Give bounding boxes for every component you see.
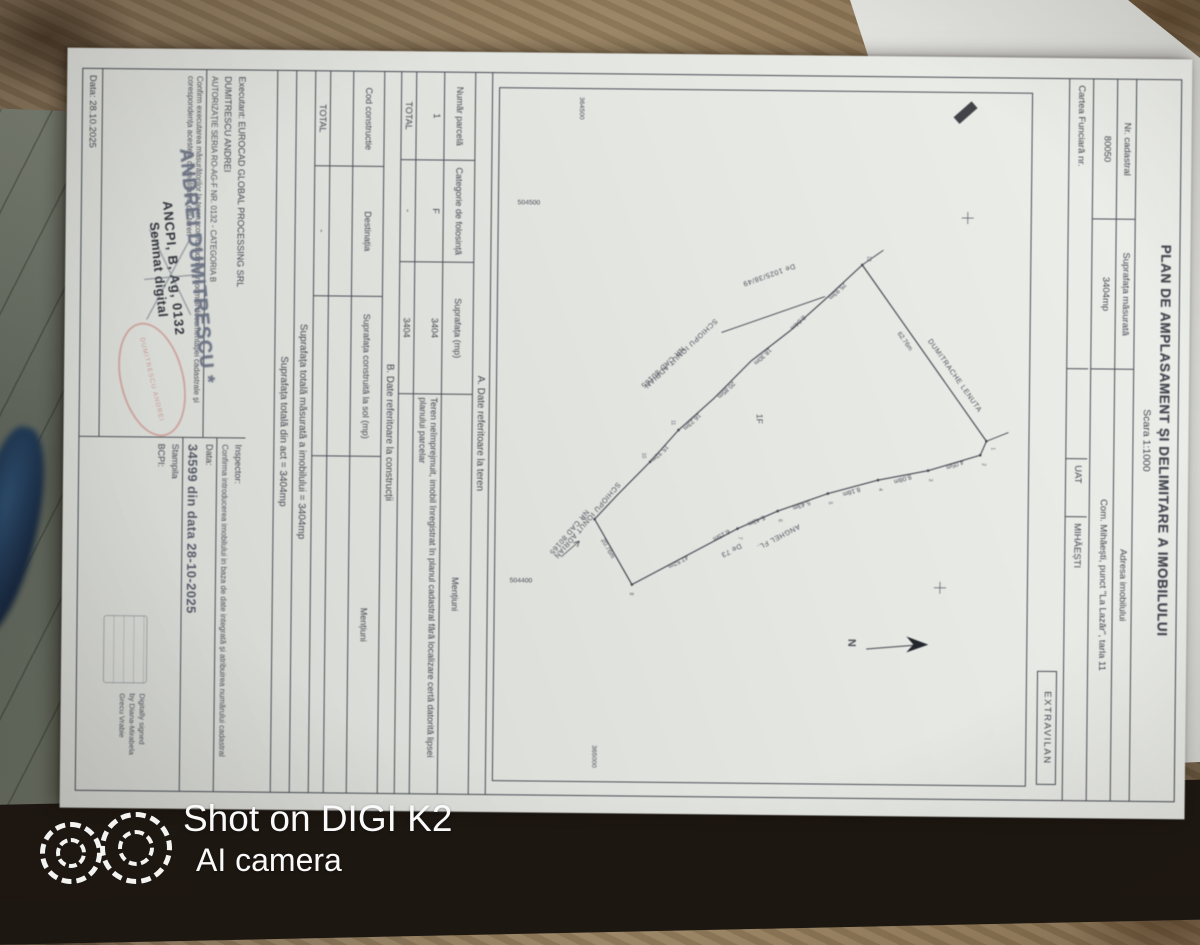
total-dash: - <box>400 160 416 262</box>
parcel-boundary <box>594 262 988 588</box>
vertex-number: 8 <box>628 593 634 596</box>
header-table: Nr. cadastral 80050 Suprafața măsurată 3… <box>1086 79 1138 800</box>
digsig-line1: Digitally signed <box>136 693 147 755</box>
zone-extravilan-label: EXTRAVILAN <box>1036 671 1057 785</box>
empty-cell <box>323 456 350 792</box>
inspector-box: Inspector: Confirma introducerea imobilu… <box>76 437 246 792</box>
empty-cell <box>328 166 352 296</box>
total-value: 3404 <box>398 262 414 394</box>
executant-date: Data: 28.10.2025 <box>79 69 103 436</box>
col-suprafata-construita: Suprafața construită la sol (mp) <box>350 297 383 457</box>
total-label-b: TOTAL <box>315 71 331 166</box>
grid-coordinate: 504400 <box>510 577 533 584</box>
total-empty-b <box>312 296 329 456</box>
suprafata-label: Suprafața măsurată <box>1114 220 1135 369</box>
neighbor-cad-left: NR CAD 80165 <box>639 345 686 391</box>
edge-print-mark <box>954 101 978 124</box>
grid-coordinate: 365000 <box>590 745 597 768</box>
dim-label: 20.85m <box>716 380 737 400</box>
boundary-spur-top <box>986 432 1008 441</box>
dim-label: 20.76m <box>599 537 616 559</box>
camera-lens-icon <box>40 822 102 884</box>
road-edge-line <box>722 295 825 333</box>
cell-suprafata: 3404 <box>413 262 442 394</box>
col-suprafata-mp: Suprafața (mp) <box>441 263 473 395</box>
col-categorie-folosinta: Categorie de folosință <box>442 161 474 263</box>
road-label: De 1025/38/49 <box>742 262 797 289</box>
header-col-suprafata: Suprafața măsurată 3404mp <box>1091 219 1135 369</box>
header-col-nr-cadastral: Nr. cadastral 80050 <box>1093 79 1136 219</box>
col-destinatia: Destinația <box>351 167 383 297</box>
dim-label: 47.52m <box>667 553 689 569</box>
site-plan-drawing: 1 2 3 4 5 6 7 8 9 10 11 12 <box>492 87 1033 787</box>
vertex-number: 2 <box>980 463 986 466</box>
dim-label: 5.43m <box>747 513 766 527</box>
inspector-date-value: 34599 din data 28-10-2025 <box>180 438 203 791</box>
grid-coordinate: 504500 <box>518 199 541 206</box>
col-mentiuni-b: Mențiuni <box>346 457 381 793</box>
grid-coordinate: 364500 <box>578 97 585 120</box>
dim-label: 8.08m <box>893 473 912 485</box>
vertex-number: 12 <box>865 256 871 262</box>
north-arrow: N <box>845 636 928 653</box>
carte-funciara-value <box>1066 369 1088 459</box>
parcel-plan-svg: 1 2 3 4 5 6 7 8 9 10 11 12 <box>493 88 1032 786</box>
nr-cadastral-value: 80050 <box>1093 79 1117 218</box>
grid-cross <box>934 212 974 594</box>
dim-label: 4.05m <box>945 458 964 471</box>
camera-lens-inner-icon <box>118 830 154 866</box>
road2-label: De 73 <box>720 542 744 560</box>
col-cod-constructie: Cod constructie <box>353 72 385 167</box>
bcpi-stamp-outline <box>103 615 148 683</box>
pen-scribble <box>138 219 199 340</box>
col-mentiuni: Mențiuni <box>437 395 472 794</box>
digsig-line2: by Diana-Mirabela <box>126 693 137 755</box>
vertex-number: 7 <box>736 537 742 540</box>
total-dash-b: - <box>313 166 329 296</box>
uat-label: UAT <box>1066 459 1088 517</box>
empty-cell <box>330 71 354 166</box>
neighbor-label-south: ANGHEL FL. <box>755 522 801 552</box>
digital-signature-text: Digitally signed by Diana-Mirabela Grecu… <box>117 693 147 755</box>
total-label: TOTAL <box>401 72 417 160</box>
cell-categorie: F <box>415 160 444 262</box>
vertex-number: 3 <box>927 479 933 482</box>
camera-lens-icon <box>100 812 172 884</box>
cadastral-plan-document: PLAN DE AMPLASAMENT ȘI DELIMITARE A IMOB… <box>60 48 1193 820</box>
document-title: PLAN DE AMPLASAMENT ȘI DELIMITARE A IMOB… <box>1153 80 1176 801</box>
dim-label: 16.23m <box>681 411 702 431</box>
neighbor-label-top: DUMITRACHE LENUTA <box>926 337 984 414</box>
digsig-line3: Grecu Vrabie <box>117 693 128 755</box>
vertex-number: 6 <box>777 519 783 522</box>
vertex-dots <box>593 261 990 590</box>
nr-cadastral-label: Nr. cadastral <box>1116 80 1136 219</box>
svg-text:N: N <box>845 639 857 647</box>
data-tables: A. Date referitoare la teren Număr parce… <box>270 71 493 794</box>
dim-label: 25.93m <box>827 281 848 301</box>
dim-label: 5.43m <box>792 498 811 511</box>
suprafata-value: 3404mp <box>1091 219 1116 368</box>
red-stamp-text: DUMITRESCU ANDREI <box>139 337 166 423</box>
dim-label: 6.15m <box>712 528 731 543</box>
vertex-number: 10 <box>640 453 646 459</box>
vertex-number: 5 <box>827 502 833 505</box>
uat-value: MIHĂEȘTI <box>1063 517 1087 800</box>
watermark-shot-on: Shot on DIGI K2 <box>183 798 452 840</box>
carte-funciara-label: Cartea Funciară nr. <box>1067 79 1091 369</box>
vertex-number: 1 <box>989 447 995 450</box>
adresa-value: Com. Mihăești, punct "La Lazăr", tarla 1… <box>1087 369 1115 800</box>
dim-label: 15.32m <box>649 443 670 463</box>
document-frame: PLAN DE AMPLASAMENT ȘI DELIMITARE A IMOB… <box>75 68 1183 802</box>
empty-cell <box>327 296 352 456</box>
col-numar-parcela: Număr parcelă <box>443 73 475 161</box>
watermark-ai-camera: AI camera <box>196 842 342 879</box>
vertex-number: 4 <box>877 488 883 491</box>
vertex-number: 11 <box>670 420 676 425</box>
cell-mentiuni: Teren neîmprejmuit, imobil înregistrat î… <box>409 394 441 793</box>
camera-lens-inner-icon <box>56 838 86 868</box>
cell-parcela: 1 <box>416 72 444 160</box>
parcel-code-label: 1F <box>755 414 765 424</box>
dim-label: 18.30m <box>752 346 773 366</box>
header-col-adresa: Adresa imobilului Com. Mihăești, punct "… <box>1087 369 1134 800</box>
dim-label: 8.04m <box>789 314 807 332</box>
